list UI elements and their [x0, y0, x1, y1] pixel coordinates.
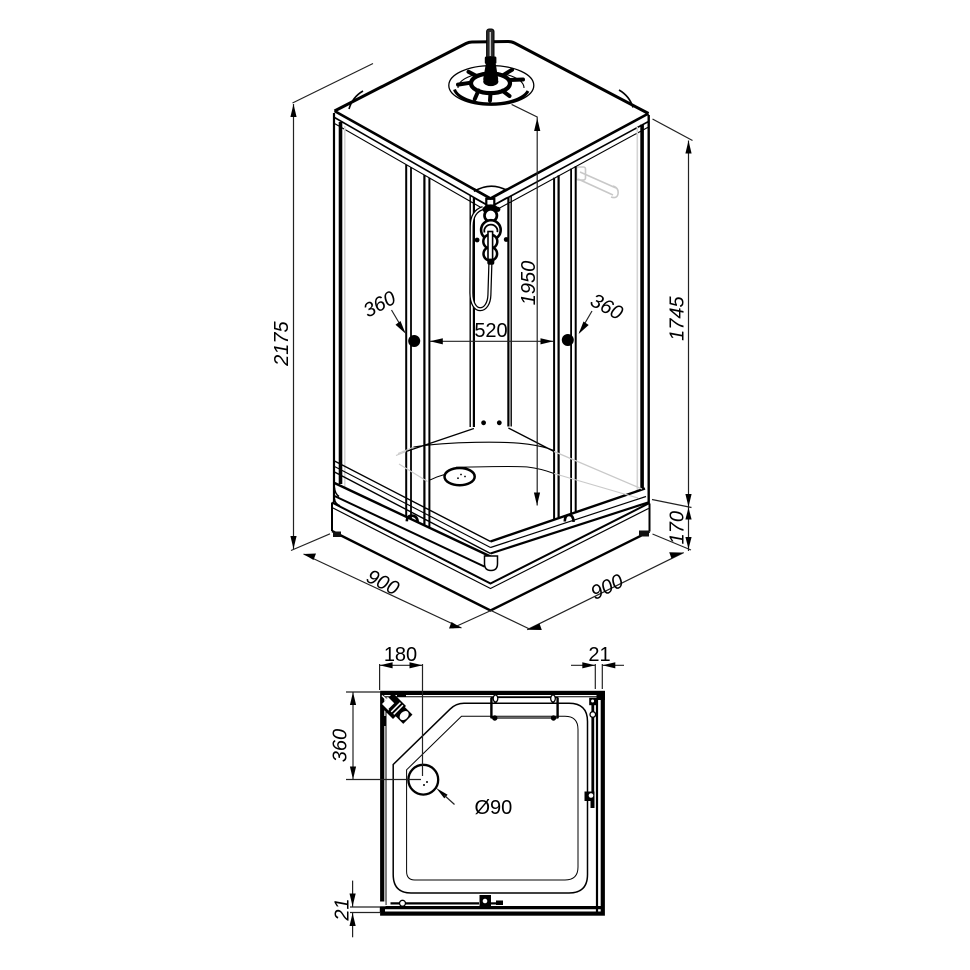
svg-text:360: 360 [330, 729, 352, 762]
svg-text:180: 180 [384, 644, 417, 666]
svg-text:1950: 1950 [518, 261, 540, 306]
svg-text:1745: 1745 [667, 295, 689, 340]
svg-text:Ø90: Ø90 [475, 797, 513, 819]
svg-text:2175: 2175 [271, 320, 293, 366]
svg-text:21: 21 [332, 898, 354, 921]
svg-text:170: 170 [667, 511, 689, 544]
svg-text:21: 21 [588, 644, 610, 666]
svg-text:520: 520 [474, 320, 507, 342]
